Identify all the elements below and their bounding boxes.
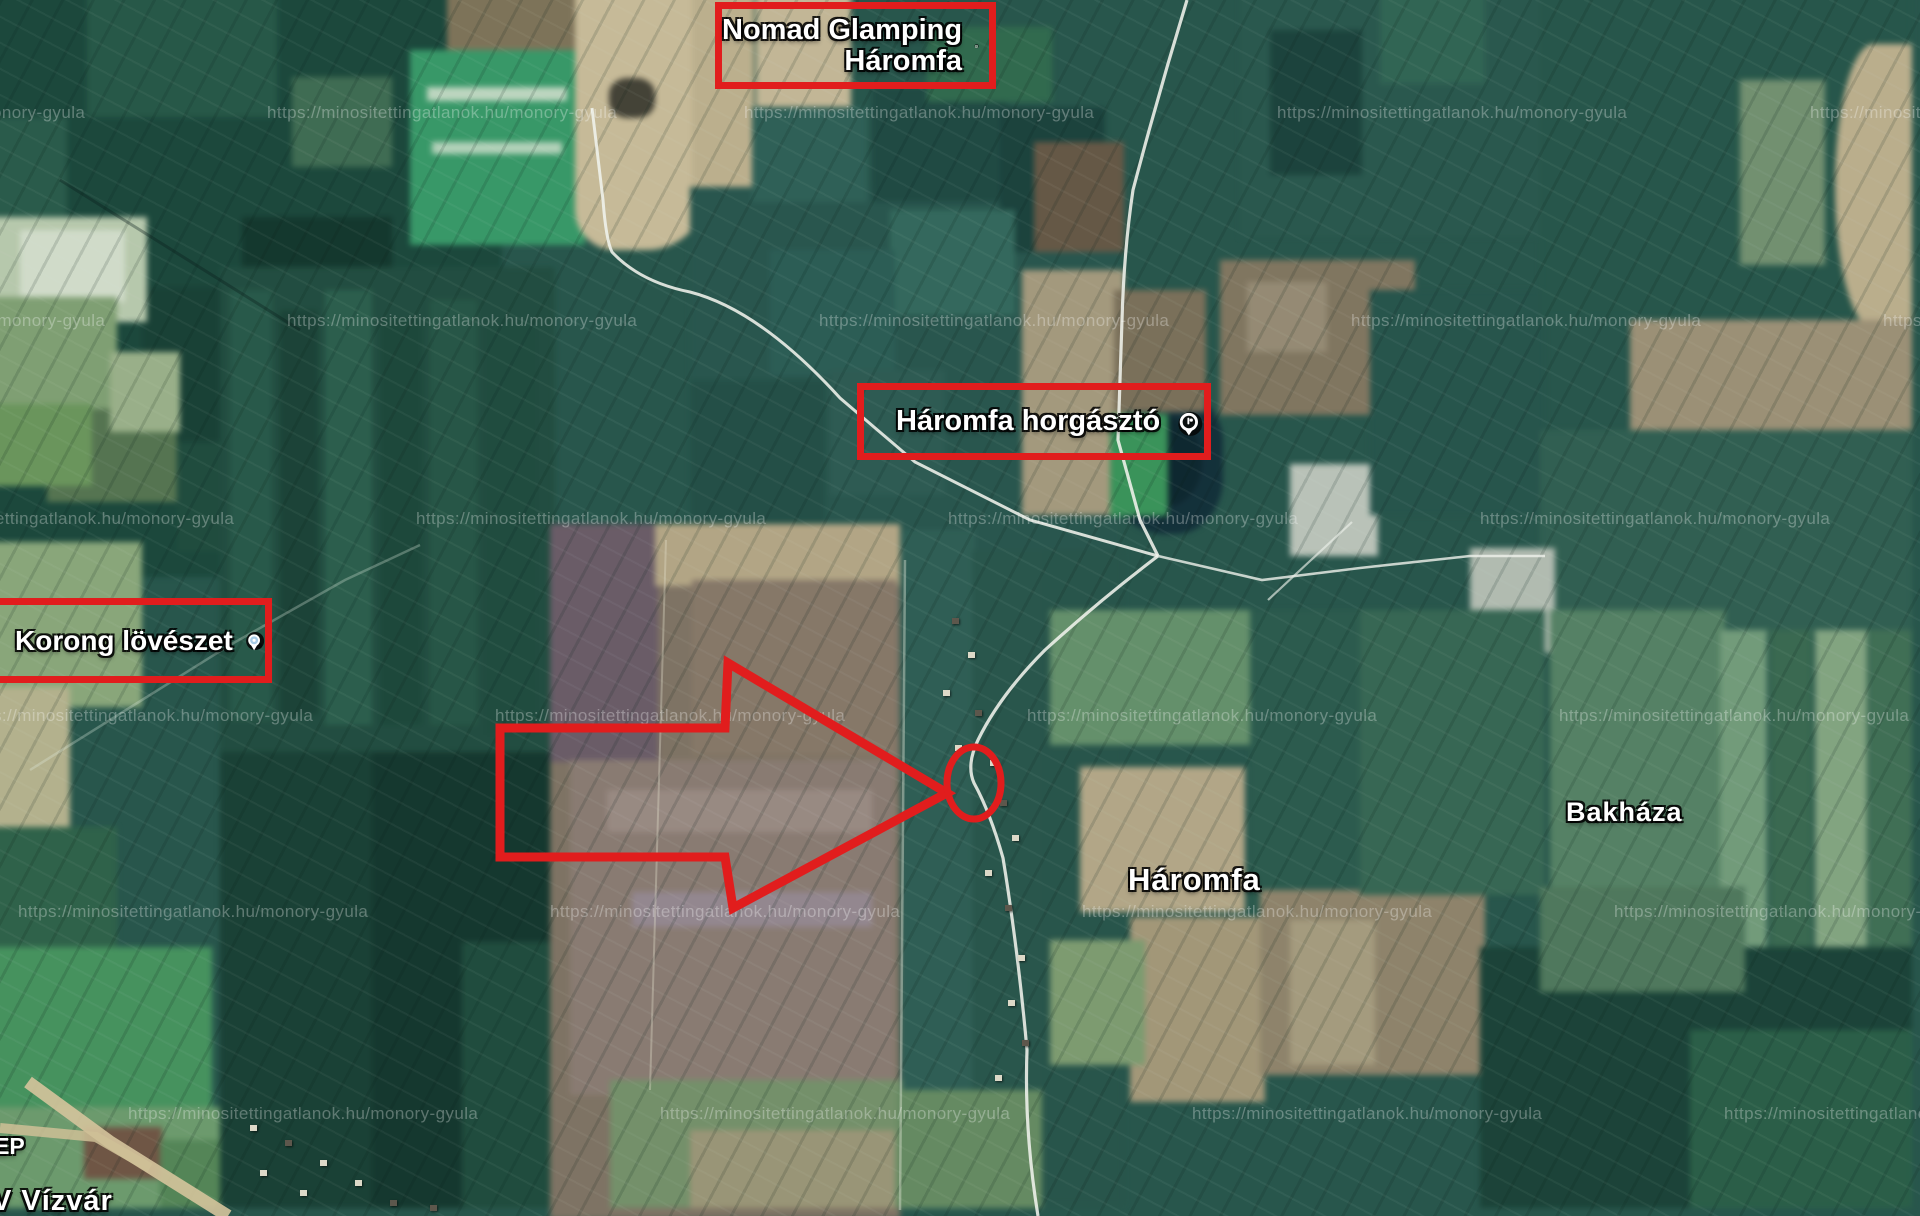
- terrain-patch: [280, 310, 318, 715]
- watermark-text: https://minositettingatlanok.hu/monory-g…: [1614, 902, 1920, 922]
- glamping-pin-icon[interactable]: [974, 13, 979, 79]
- watermark-text: https://minositettingatlanok.hu/monory-g…: [744, 103, 1094, 123]
- house-rooftop: [995, 1075, 1002, 1081]
- korong-loveszet-label: Korong lövészet: [15, 626, 233, 655]
- watermark-text: https://minositettingatlanok.hu/monory-g…: [267, 103, 617, 123]
- shooting-pin-icon[interactable]: [243, 607, 265, 675]
- terrain-patch: [1290, 920, 1375, 1065]
- house-rooftop: [1012, 835, 1019, 841]
- bakhaza-town-label: Bakháza: [1566, 798, 1683, 826]
- watermark-text: https://minositettingatlanok.hu/monory-g…: [0, 103, 85, 123]
- terrain-patch: [0, 117, 67, 232]
- terrain-patch: [427, 87, 567, 101]
- terrain-patch: [462, 942, 555, 1208]
- house-rooftop: [355, 1180, 362, 1186]
- house-rooftop: [390, 1200, 397, 1206]
- house-rooftop: [285, 1140, 292, 1146]
- house-rooftop: [1018, 955, 1025, 961]
- house-rooftop: [985, 870, 992, 876]
- watermark-text: https://minositettingatlanok.hu/monory-g…: [1724, 1104, 1920, 1124]
- watermark-text: https://minositettingatlanok.hu/monory-g…: [1082, 902, 1432, 922]
- watermark-text: https://minositettingatlanok.hu/monory-g…: [550, 902, 900, 922]
- terrain-patch: [890, 210, 1015, 315]
- terrain-patch: [1540, 430, 1912, 635]
- terrain-imagery: [0, 0, 1920, 1216]
- annotation-box-korong-loveszet: Korong lövészet: [0, 598, 272, 683]
- watermark-text: https://minositettingatlanok.hu/monory-g…: [416, 509, 766, 529]
- house-rooftop: [1005, 905, 1012, 911]
- house-rooftop: [300, 1190, 307, 1196]
- terrain-patch: [1770, 630, 1812, 975]
- vizvar-town-label: V Vízvár: [0, 1186, 113, 1216]
- haromfa-town-label: Háromfa: [1128, 864, 1261, 897]
- terrain-patch: [432, 142, 562, 154]
- terrain-patch: [575, 0, 707, 250]
- terrain-patch: [1290, 464, 1378, 556]
- terrain-patch: [1247, 282, 1327, 352]
- terrain-patch: [692, 580, 897, 755]
- watermark-text: https://minositettingatlanok.hu/monory-g…: [660, 1104, 1010, 1124]
- house-rooftop: [260, 1170, 267, 1176]
- watermark-text: https://minositettingatlanok.hu/monory-g…: [0, 311, 105, 331]
- terrain-patch: [1050, 940, 1145, 1065]
- house-rooftop: [968, 652, 975, 658]
- house-rooftop: [1008, 1000, 1015, 1006]
- house-rooftop: [990, 760, 997, 766]
- nomad-glamping-label-line2: Háromfa: [722, 46, 962, 76]
- watermark-text: https://minositettingatlanok.hu/monory-g…: [287, 311, 637, 331]
- watermark-text: https://minositettingatlanok.hu/monory-g…: [1192, 1104, 1542, 1124]
- terrain-patch: [84, 1127, 162, 1179]
- watermark-text: https://minositettingatlanok.hu/monory-g…: [819, 311, 1169, 331]
- watermark-text: https://minositettingatlanok.hu/monory-g…: [128, 1104, 478, 1124]
- annotation-box-nomad-glamping: Nomad Glamping Háromfa: [715, 2, 996, 89]
- watermark-text: https://minositettingatlanok.hu/monory-g…: [0, 706, 313, 726]
- watermark-text: https://minositettingatlanok.hu/monory-g…: [948, 509, 1298, 529]
- house-rooftop: [1000, 800, 1007, 806]
- satellite-map[interactable]: https://minositettingatlanok.hu/monory-g…: [0, 0, 1920, 1216]
- house-rooftop: [320, 1160, 327, 1166]
- terrain-patch: [1360, 610, 1545, 895]
- terrain-patch: [550, 524, 658, 762]
- house-rooftop: [975, 710, 982, 716]
- terrain-patch: [0, 404, 92, 486]
- terrain-patch: [110, 352, 180, 432]
- terrain-patch: [1550, 610, 1725, 895]
- terrain-patch: [1034, 142, 1124, 252]
- house-rooftop: [955, 745, 962, 751]
- watermark-text: https://minositettingatlanok.hu/monory-g…: [0, 509, 234, 529]
- terrain-patch: [325, 290, 372, 725]
- house-rooftop: [1022, 1040, 1029, 1046]
- terrain-patch: [1835, 44, 1912, 329]
- house-rooftop: [430, 1205, 437, 1211]
- watermark-text: https://minositettingatlanok.hu/monory-g…: [1883, 311, 1920, 331]
- ep-label-fragment: EP: [0, 1134, 25, 1158]
- haromfa-horgaszto-label: Háromfa horgásztó: [896, 406, 1160, 436]
- watermark-text: https://minositettingatlanok.hu/monory-g…: [495, 706, 845, 726]
- house-rooftop: [943, 690, 950, 696]
- terrain-patch: [607, 790, 872, 832]
- watermark-text: https://minositettingatlanok.hu/monory-g…: [1351, 311, 1701, 331]
- watermark-text: https://minositettingatlanok.hu/monory-g…: [1810, 103, 1920, 123]
- nomad-glamping-label-line1: Nomad Glamping: [722, 15, 962, 45]
- watermark-text: https://minositettingatlanok.hu/monory-g…: [1559, 706, 1909, 726]
- terrain-patch: [1250, 610, 1365, 915]
- house-rooftop: [250, 1125, 257, 1131]
- terrain-patch: [1130, 917, 1265, 1102]
- watermark-text: https://minositettingatlanok.hu/monory-g…: [18, 902, 368, 922]
- terrain-patch: [20, 230, 125, 302]
- terrain-patch: [1868, 630, 1912, 975]
- watermark-text: https://minositettingatlanok.hu/monory-g…: [1480, 509, 1830, 529]
- terrain-patch: [87, 0, 277, 117]
- fishing-pin-icon[interactable]: [1174, 389, 1204, 455]
- terrain-patch: [1815, 630, 1867, 975]
- terrain-patch: [655, 524, 900, 586]
- terrain-patch: [690, 1130, 895, 1208]
- terrain-patch: [0, 947, 212, 1122]
- annotation-box-haromfa-horgaszto: Háromfa horgásztó: [857, 383, 1211, 460]
- house-rooftop: [952, 618, 959, 624]
- terrain-patch: [1380, 0, 1485, 84]
- terrain-patch: [1630, 320, 1912, 435]
- watermark-text: https://minositettingatlanok.hu/monory-g…: [1027, 706, 1377, 726]
- watermark-text: https://minositettingatlanok.hu/monory-g…: [1277, 103, 1627, 123]
